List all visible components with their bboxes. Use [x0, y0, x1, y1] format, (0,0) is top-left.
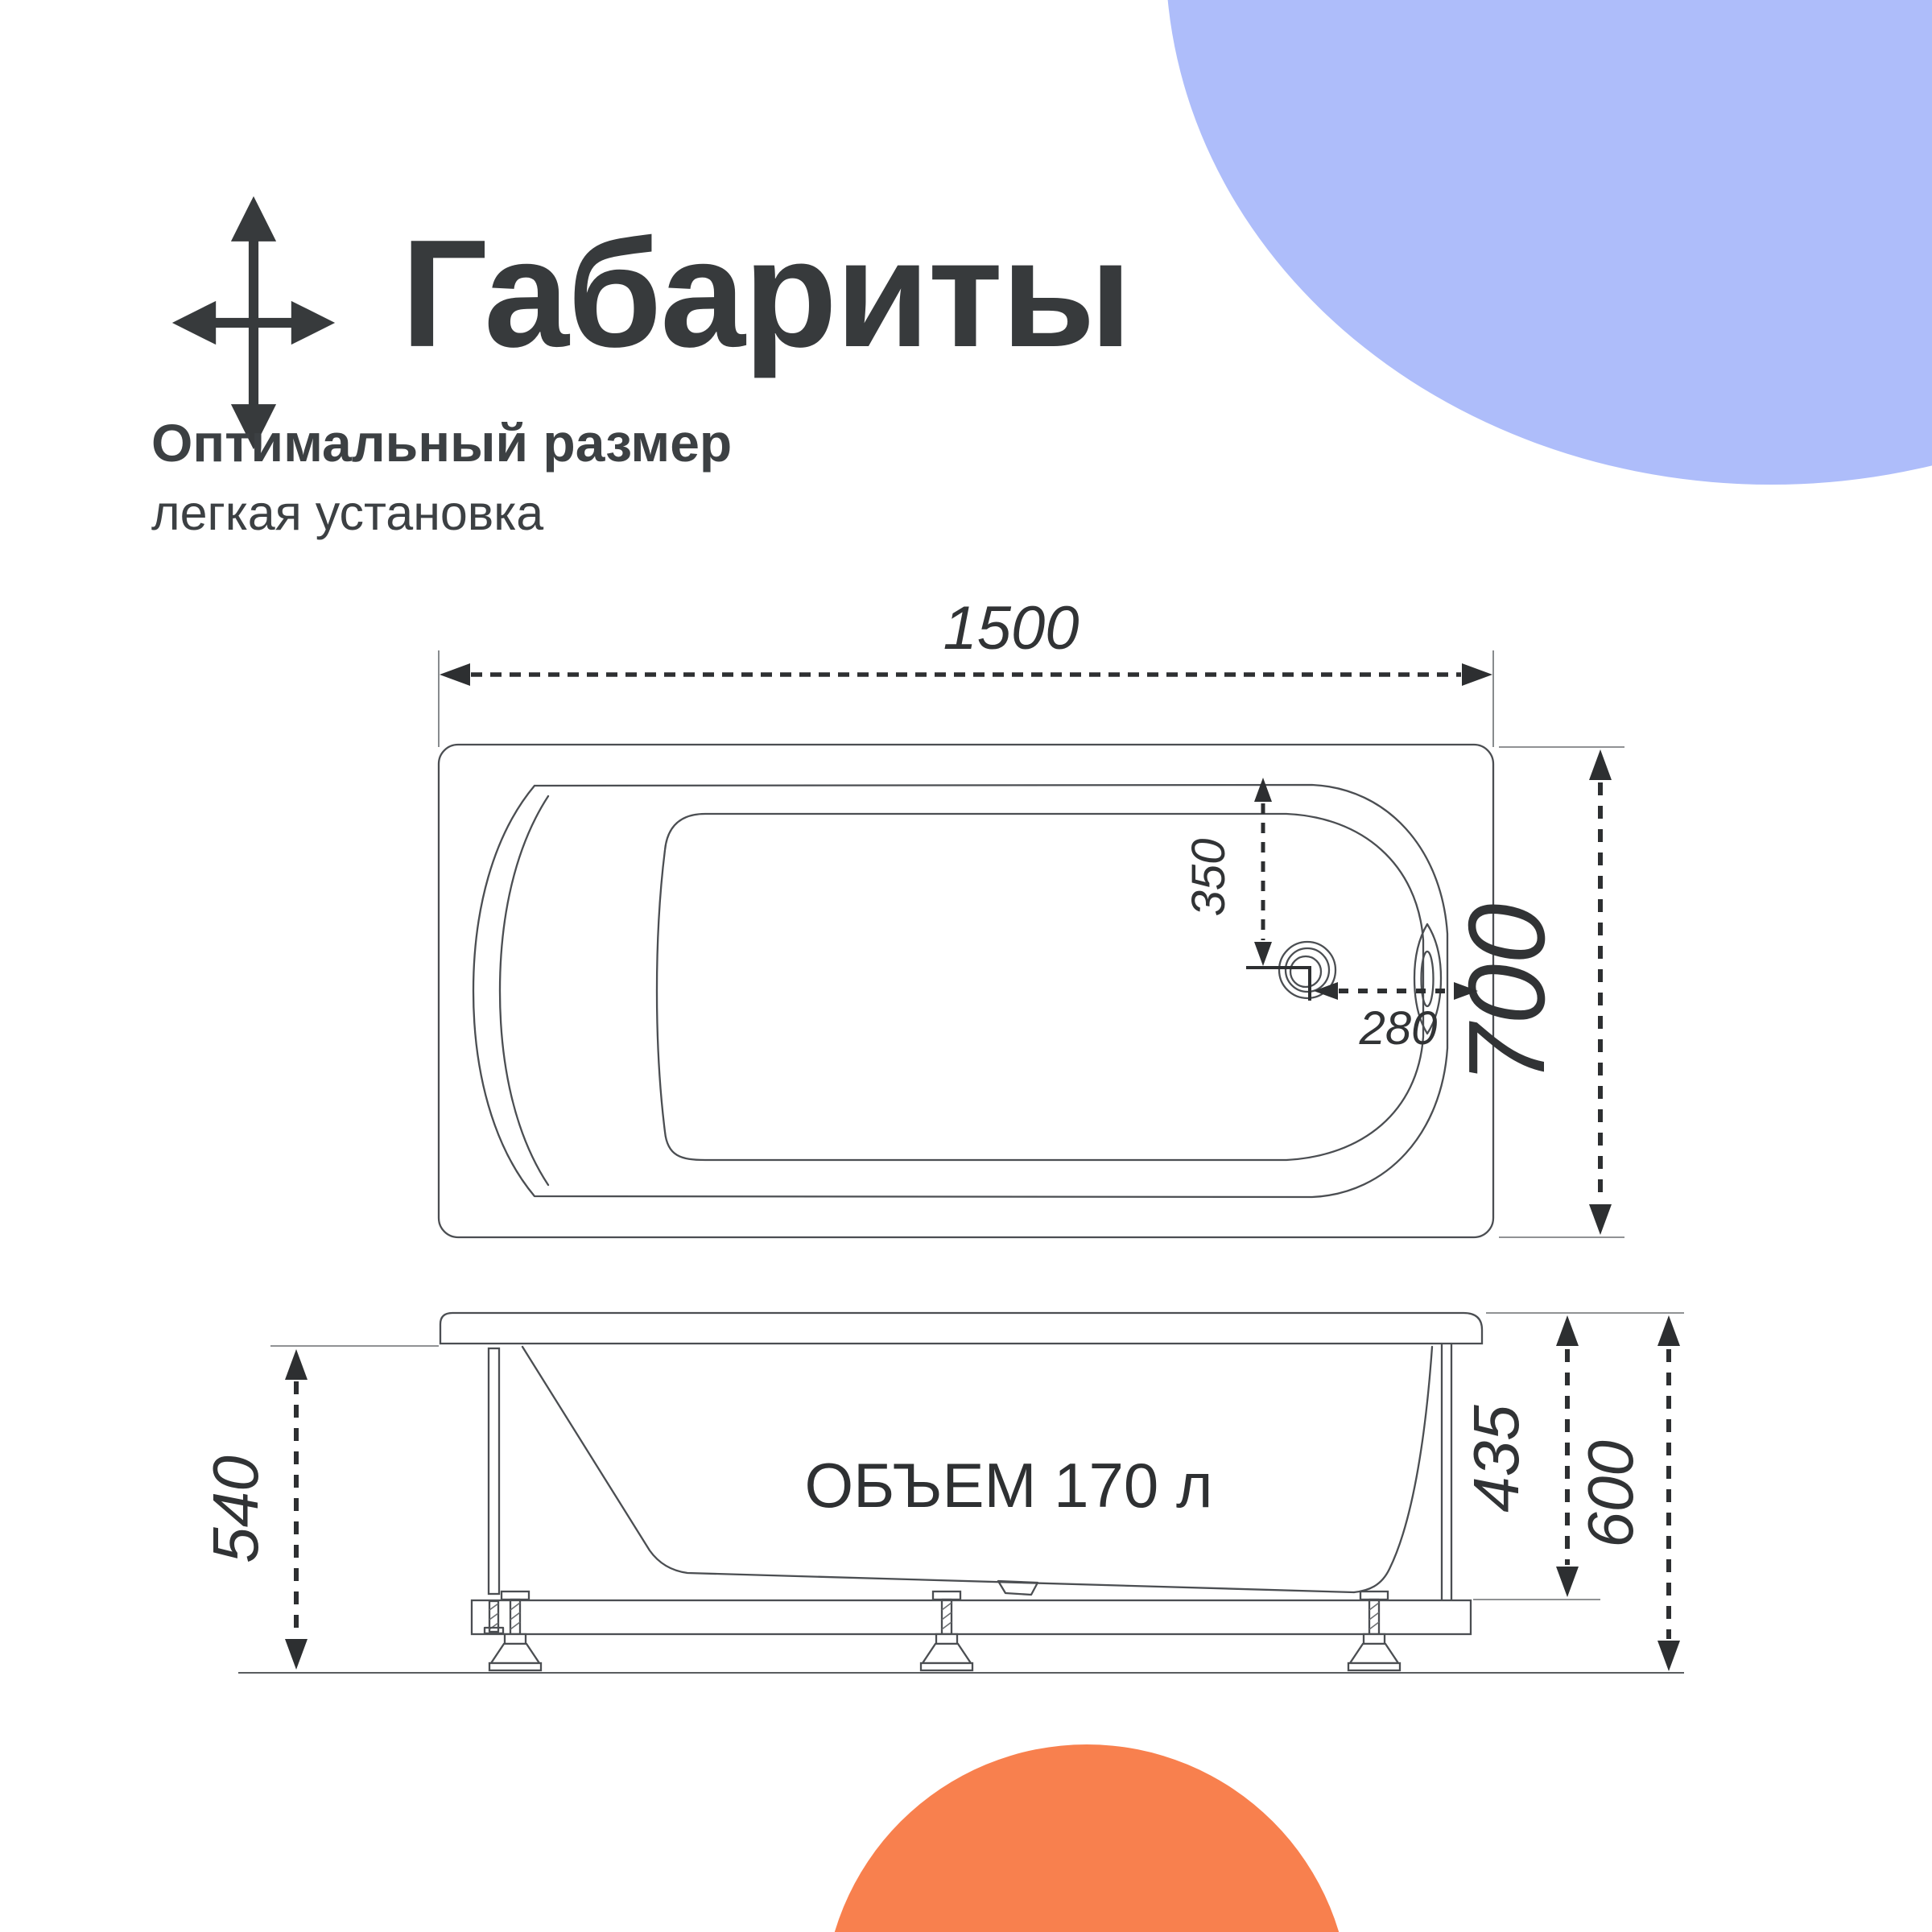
dim-length: 1500: [439, 594, 1493, 747]
dim-skirt-height: 540: [200, 1349, 308, 1670]
plan-view: 1500 700 350: [439, 594, 1624, 1237]
dim-drain-top-label: 350: [1183, 839, 1235, 917]
dim-skirt-height-label: 540: [200, 1455, 271, 1563]
support-frame: [472, 1600, 1471, 1634]
bathtub-dimension-drawing: 1500 700 350: [0, 0, 1932, 1932]
side-view: ОБЪЕМ 170 л 540 435 600: [200, 1313, 1684, 1673]
dim-length-label: 1500: [943, 594, 1079, 663]
volume-label: ОБЪЕМ 170 л: [805, 1450, 1213, 1521]
dim-total-height-label: 600: [1575, 1440, 1646, 1547]
apron-panel: [489, 1348, 499, 1594]
dim-drain-right-label: 280: [1359, 1002, 1438, 1055]
tub-profile-right: [1354, 1347, 1432, 1592]
infographic-page: Габариты Оптимальный размер легкая устан…: [0, 0, 1932, 1932]
dim-rim-to-frame: 435: [1460, 1315, 1579, 1597]
rim-slab: [440, 1313, 1482, 1344]
dim-rim-to-frame-label: 435: [1460, 1405, 1532, 1513]
dim-total-height: 600: [1575, 1315, 1680, 1671]
